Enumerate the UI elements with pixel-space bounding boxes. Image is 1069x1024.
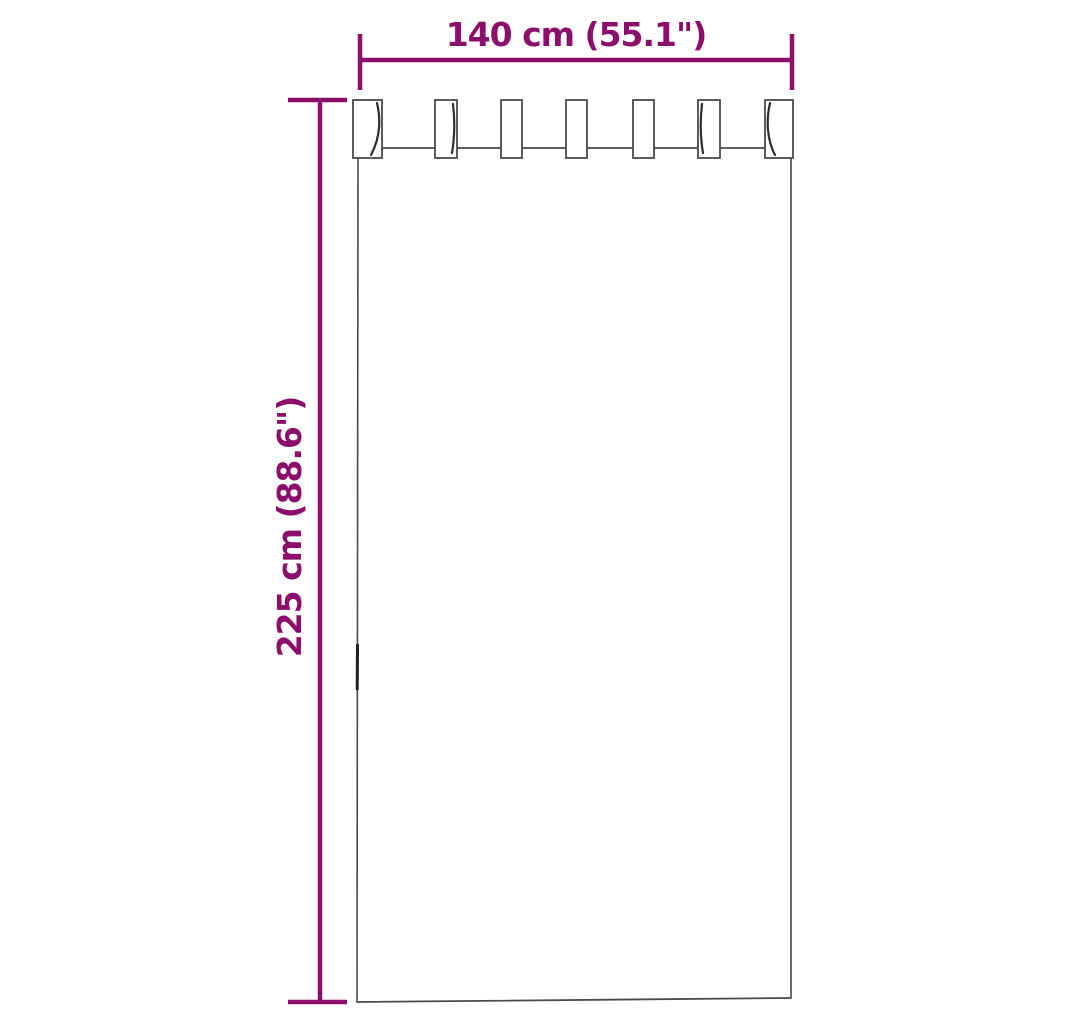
curtain-tab-2 bbox=[435, 100, 457, 158]
curtain-tab-6 bbox=[698, 100, 720, 158]
curtain-bottom-edge bbox=[357, 998, 791, 1002]
curtain-tab-3 bbox=[501, 100, 522, 158]
curtain-tab-7 bbox=[765, 100, 793, 158]
curtain-left-edge bbox=[357, 152, 358, 1002]
curtain-tab-1 bbox=[353, 100, 382, 158]
tab-rect bbox=[501, 100, 522, 158]
height-dimension-label: 225 cm (88.6") bbox=[270, 397, 309, 658]
curtain-tab-4 bbox=[566, 100, 587, 158]
width-dimension: 140 cm (55.1") bbox=[360, 15, 792, 90]
curtain-tab-5 bbox=[633, 100, 654, 158]
curtain-dimension-diagram: 140 cm (55.1") 225 cm (88.6") bbox=[0, 0, 1069, 1024]
width-dimension-label: 140 cm (55.1") bbox=[446, 15, 707, 54]
diagram-svg: 140 cm (55.1") 225 cm (88.6") bbox=[0, 0, 1069, 1024]
tab-rect bbox=[566, 100, 587, 158]
curtain-tabs bbox=[353, 100, 793, 158]
curtain-drawing bbox=[353, 100, 793, 1002]
tab-rect bbox=[633, 100, 654, 158]
height-dimension: 225 cm (88.6") bbox=[270, 100, 347, 1002]
